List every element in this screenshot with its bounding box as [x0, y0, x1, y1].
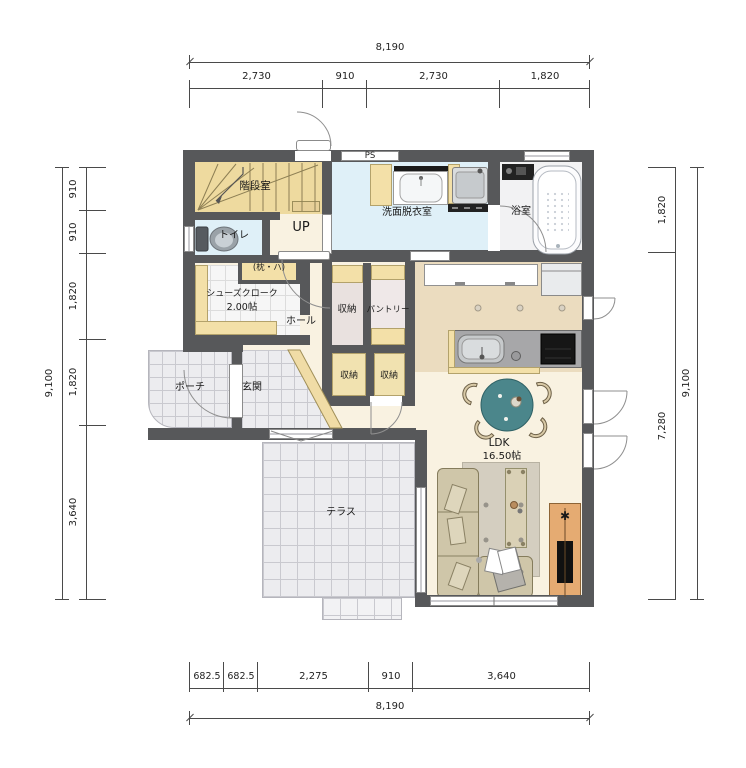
room-label-closet-small: 収納	[329, 371, 369, 382]
wall	[300, 263, 310, 315]
wall	[402, 396, 415, 406]
room-label-washroom: 洗面脱衣室	[357, 207, 457, 219]
wall	[322, 250, 594, 262]
floor-terrace	[262, 442, 415, 598]
room-label-toilet: トイレ	[204, 230, 264, 242]
refrigerator	[541, 263, 582, 296]
dim-top-seg: 1,820	[500, 71, 590, 82]
sofa	[437, 468, 479, 598]
wall	[334, 428, 416, 440]
window	[524, 151, 570, 161]
dim-top-seg: 2,730	[190, 71, 323, 82]
sofa-side-table	[505, 468, 527, 548]
pantry-shelf	[371, 328, 405, 345]
washing-machine	[452, 167, 488, 204]
room-label-closet-small: 収納	[369, 371, 409, 382]
room-label-ldk: LDK	[469, 437, 529, 450]
vanity-counter	[393, 171, 448, 205]
dim-left-total: 9,100	[43, 353, 57, 413]
dim-top-seg: 2,730	[367, 71, 500, 82]
tv	[557, 541, 573, 583]
room-label-entrance: 玄関	[222, 382, 282, 394]
door	[583, 389, 593, 424]
room-label-terrace: テラス	[301, 507, 381, 519]
sliding-door	[322, 214, 332, 254]
door-leaf	[278, 251, 330, 260]
room-label-stairwell: 階段室	[215, 180, 295, 193]
bath-counter	[502, 164, 534, 180]
window	[184, 226, 194, 252]
door	[583, 296, 593, 320]
up-annotation: UP	[281, 220, 321, 236]
window	[416, 487, 426, 593]
room-label-porch: ポーチ	[160, 382, 220, 394]
room-label-shoe-closet: シューズクローク	[192, 289, 292, 300]
floor-plan: 8,190 2,730 910 2,730 1,820 682.5 682.5 …	[0, 0, 746, 768]
dim-top-seg: 910	[323, 71, 367, 82]
dim-top-total: 8,190	[190, 42, 590, 53]
kitchen-bar-counter	[448, 367, 540, 374]
sofa-chaise	[478, 556, 533, 598]
door-opening	[370, 396, 402, 406]
wall	[183, 335, 310, 345]
wall	[582, 150, 594, 607]
room-size-ldk: 16.50帖	[462, 451, 542, 463]
shelf-note: (枕・ハ)	[240, 263, 298, 273]
washroom-cabinet	[370, 164, 392, 206]
window	[269, 429, 333, 439]
pantry-shelf	[371, 265, 405, 280]
wall	[405, 262, 415, 406]
kitchen-counter	[424, 264, 538, 286]
tv-marker: ✱	[558, 509, 572, 523]
window	[430, 596, 558, 606]
closet-shelf	[332, 265, 363, 283]
dim-right-total: 9,100	[680, 353, 694, 413]
wall	[322, 396, 370, 406]
ps-annotation: PS	[341, 151, 399, 161]
shoe-closet-cabinet	[195, 321, 277, 335]
dim-line	[190, 62, 590, 63]
door-opening	[295, 151, 331, 161]
door	[583, 433, 593, 468]
entry-door-leaf	[296, 140, 331, 151]
room-label-pantry: パントリー	[358, 305, 418, 315]
wall	[322, 262, 332, 406]
room-label-hall: ホール	[266, 316, 336, 328]
sliding-door	[410, 251, 450, 261]
kitchen-island	[450, 330, 582, 368]
dim-bottom-total: 8,190	[190, 701, 590, 712]
terrace-step	[322, 598, 402, 620]
stair-landing	[292, 201, 320, 212]
room-size-shoe-closet: 2.00帖	[192, 302, 292, 313]
room-label-bathroom: 浴室	[491, 206, 551, 218]
